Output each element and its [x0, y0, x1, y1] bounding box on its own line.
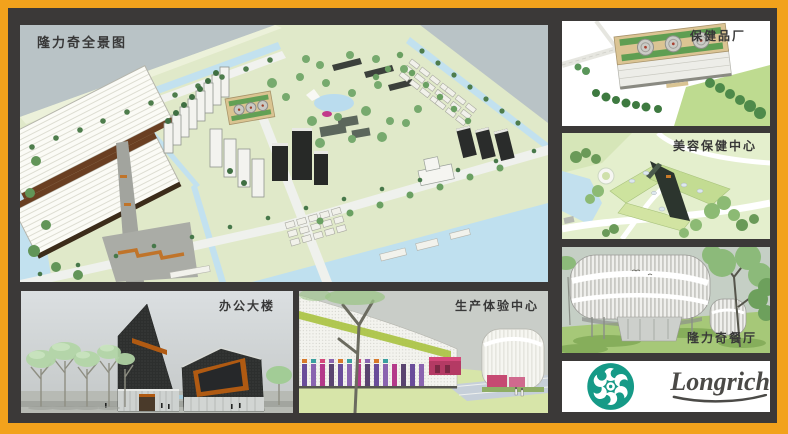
panel-overview: 隆力奇全景图: [20, 25, 548, 282]
panel-production: 生产体验中心: [299, 291, 548, 413]
brand-underline-swoosh: [670, 394, 770, 404]
panel-restaurant: 隆力奇餐厅: [562, 247, 770, 353]
panel-factory: 保健品厂: [562, 21, 770, 126]
beauty-label: 美容保健中心: [673, 140, 757, 152]
aerial-rendering: [20, 25, 548, 282]
overview-label: 隆力奇全景图: [37, 36, 127, 49]
factory-label: 保健品厂: [690, 30, 746, 42]
restaurant-label: 隆力奇餐厅: [687, 332, 757, 344]
office-label: 办公大楼: [219, 300, 275, 312]
presentation-board: 隆力奇全景图: [0, 0, 788, 434]
brand-name: Longrich: [670, 369, 770, 395]
panel-logo: Longrich: [562, 361, 770, 412]
panel-office: 办公大楼: [21, 291, 293, 413]
longrich-flower-icon: [562, 361, 659, 412]
panel-beauty: 美容保健中心: [562, 133, 770, 239]
production-label: 生产体验中心: [455, 300, 539, 312]
